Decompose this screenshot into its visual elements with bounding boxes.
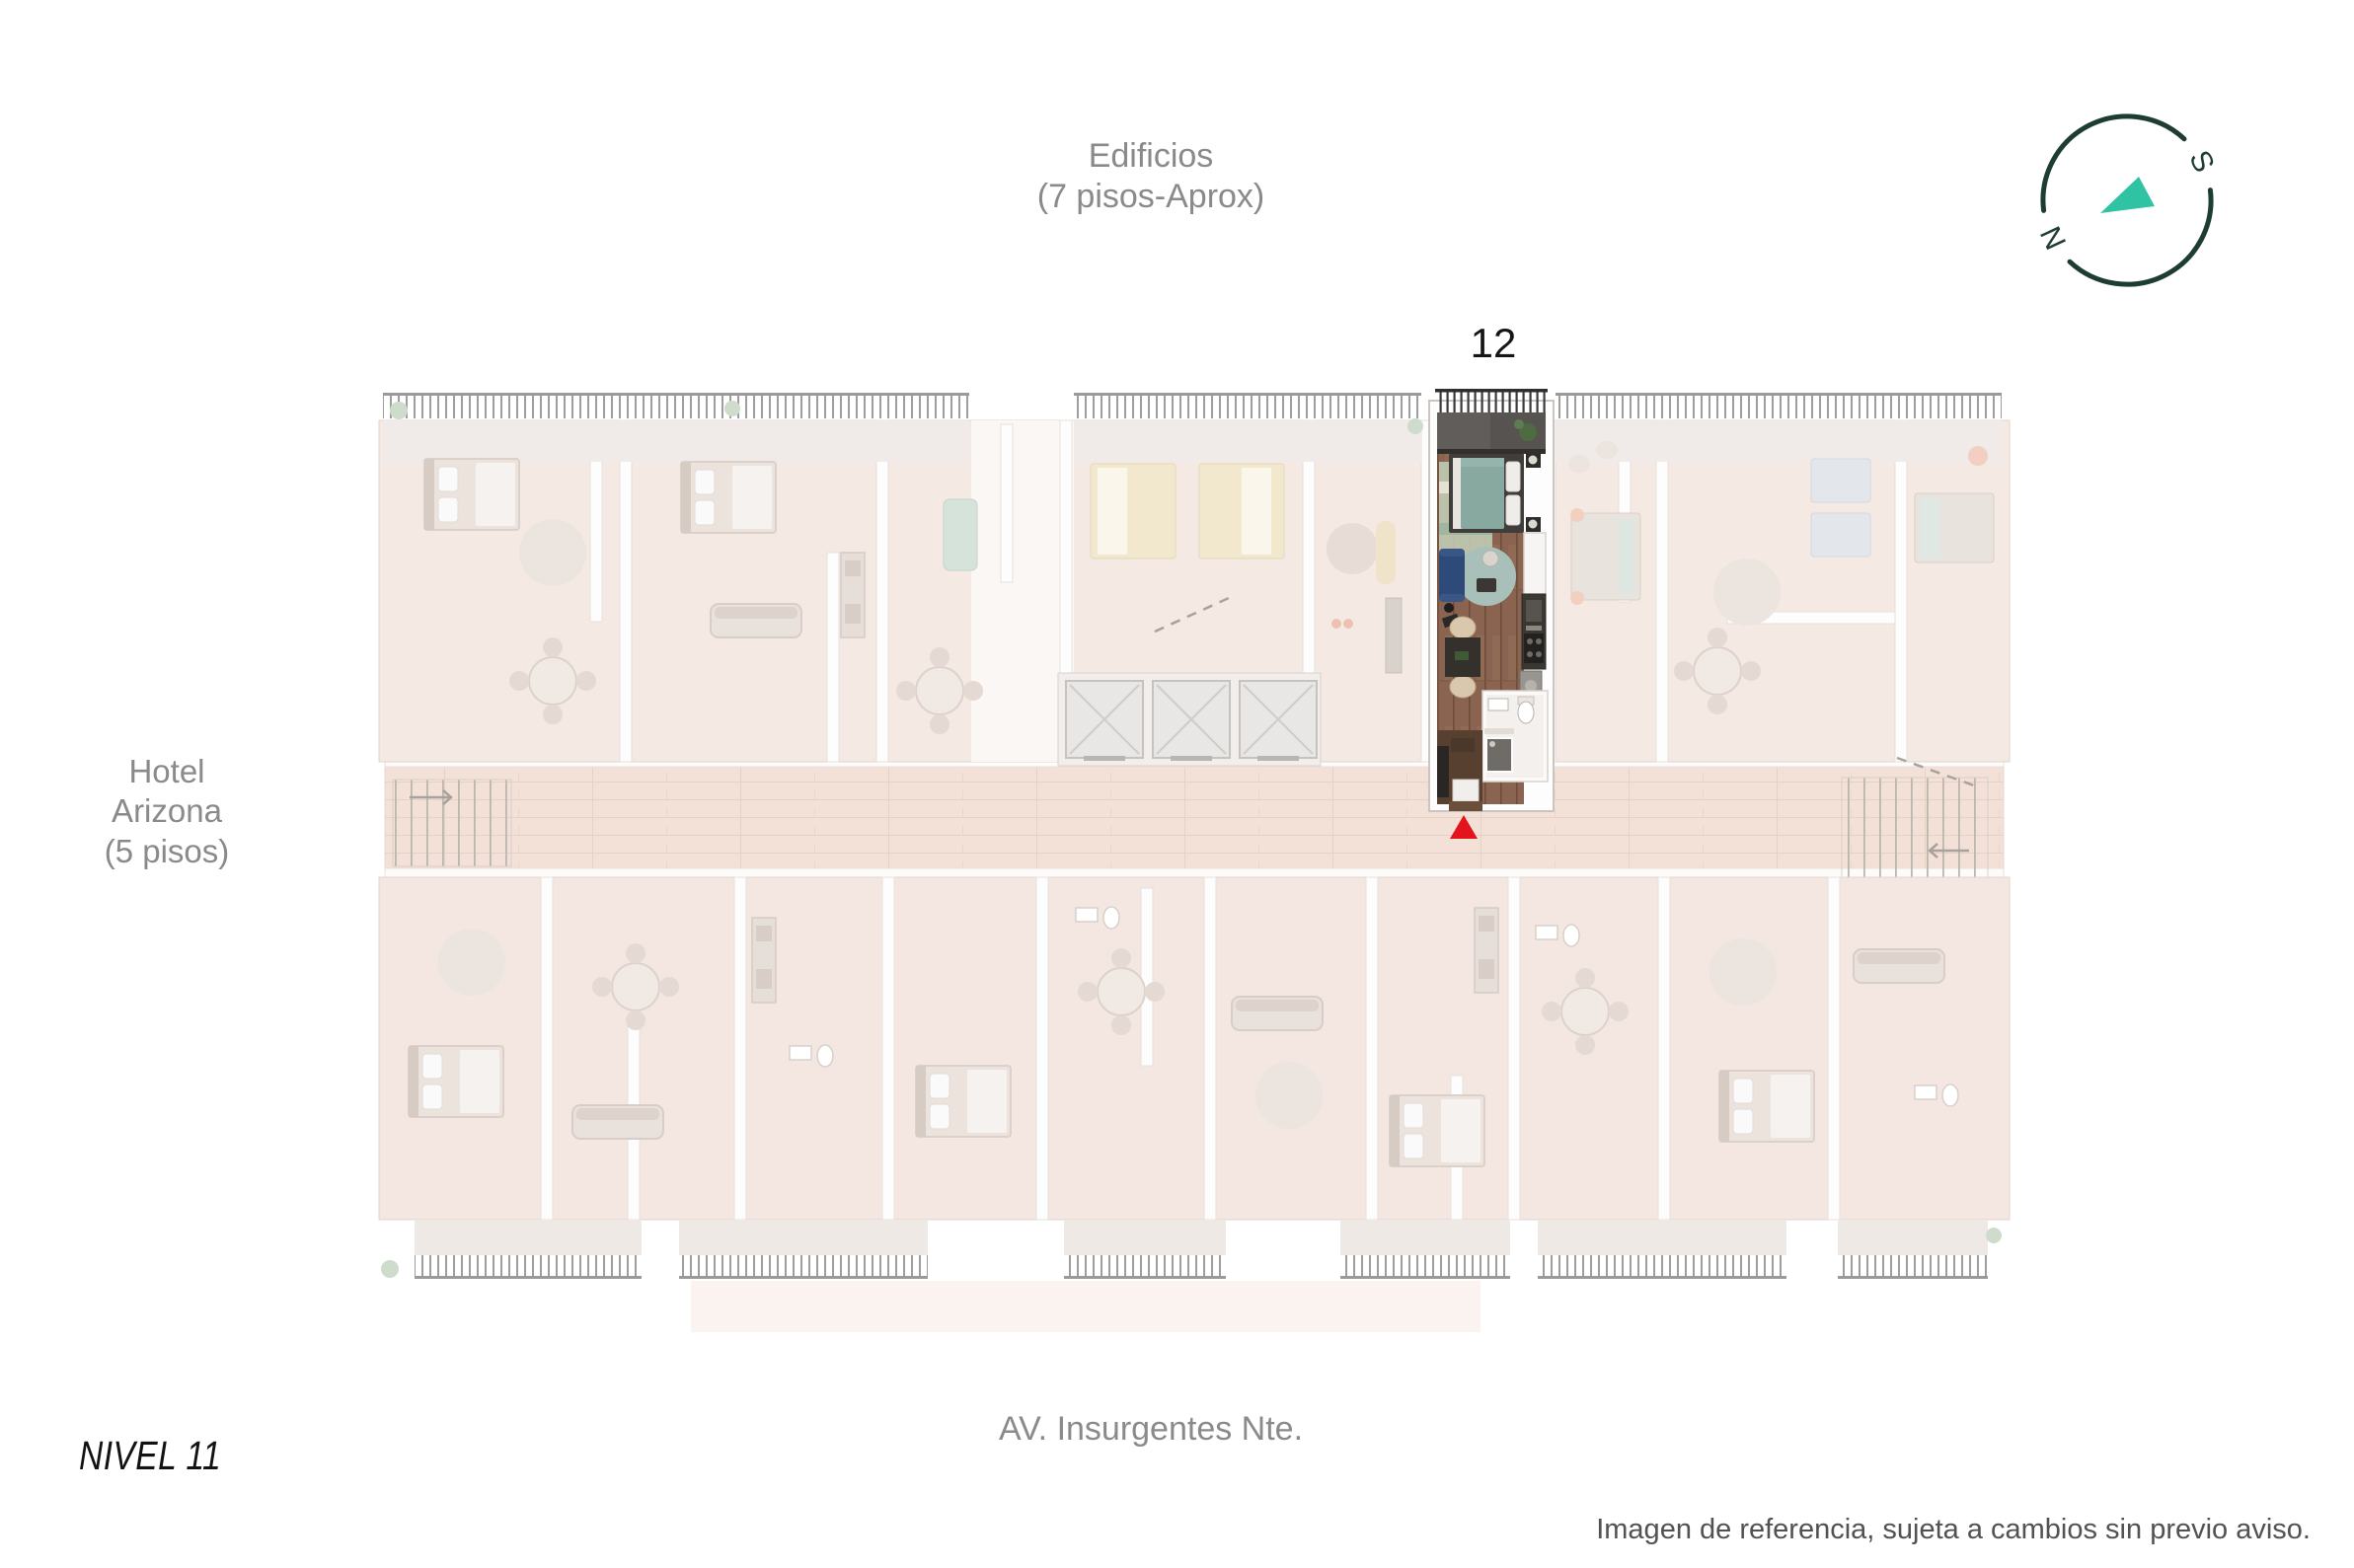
compass-north-label: N xyxy=(2036,222,2072,256)
floor-plan xyxy=(0,0,2354,1568)
unit-dining xyxy=(1445,617,1481,698)
disclaimer-text: Imagen de referencia, sujeta a cambios s… xyxy=(1596,1514,2311,1546)
level-label: NIVEL 11 xyxy=(79,1433,221,1479)
unit-kitchen xyxy=(1520,533,1546,701)
compass-icon: N S xyxy=(2036,107,2220,290)
unit-balcony-railing xyxy=(1435,391,1548,412)
stairwell-right xyxy=(1842,778,1988,880)
floorplan-page: Edificios (7 pisos-Aprox) Hotel Arizona … xyxy=(0,0,2354,1568)
faded-plan-layer xyxy=(379,393,2010,1332)
unit-number-label: 12 xyxy=(1471,320,1517,367)
street-label: AV. Insurgentes Nte. xyxy=(999,1409,1303,1450)
hotel-arizona-label: Hotel Arizona (5 pisos) xyxy=(105,752,230,871)
compass-south-label: S xyxy=(2182,146,2220,178)
compass-needle-icon xyxy=(2100,177,2155,213)
stairwell-left xyxy=(393,780,511,866)
adjacent-buildings-line1: Edificios xyxy=(1037,136,1265,177)
unit-bathroom xyxy=(1482,691,1548,782)
highlighted-unit-12[interactable] xyxy=(1429,389,1554,811)
adjacent-buildings-label: Edificios (7 pisos-Aprox) xyxy=(1037,136,1265,218)
adjacent-buildings-line2: (7 pisos-Aprox) xyxy=(1037,177,1265,217)
unit-entry xyxy=(1437,730,1482,811)
